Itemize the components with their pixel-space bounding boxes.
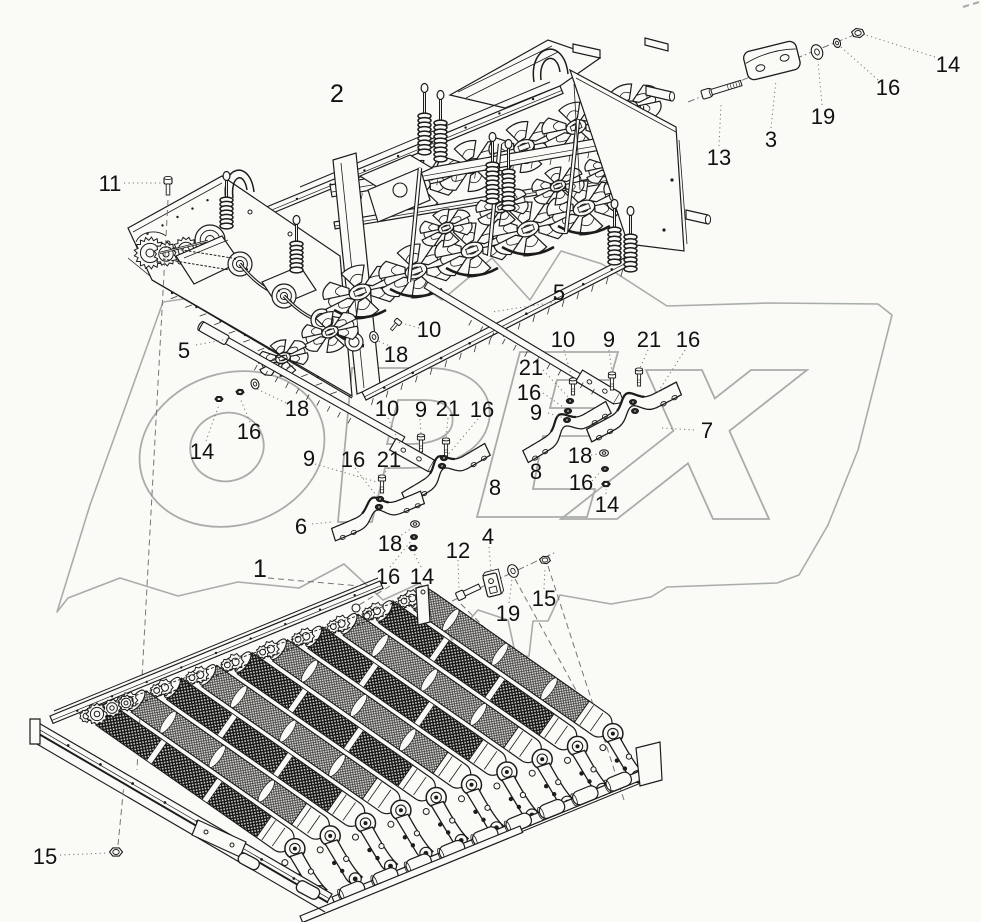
svg-text:16: 16 [237, 419, 261, 444]
svg-text:3: 3 [765, 127, 777, 152]
svg-text:9: 9 [415, 397, 427, 422]
svg-text:18: 18 [285, 396, 309, 421]
svg-text:5: 5 [553, 280, 565, 305]
svg-text:18: 18 [568, 443, 592, 468]
svg-text:15: 15 [532, 586, 556, 611]
svg-text:16: 16 [876, 75, 900, 100]
svg-text:9: 9 [603, 327, 615, 352]
svg-text:2: 2 [330, 80, 344, 108]
svg-text:12: 12 [446, 538, 470, 563]
svg-text:13: 13 [707, 145, 731, 170]
svg-text:10: 10 [551, 327, 575, 352]
svg-text:14: 14 [190, 439, 214, 464]
svg-text:8: 8 [530, 459, 542, 484]
svg-text:16: 16 [341, 447, 365, 472]
svg-text:16: 16 [569, 470, 593, 495]
svg-text:1: 1 [253, 555, 267, 583]
svg-text:9: 9 [530, 400, 542, 425]
svg-text:18: 18 [384, 342, 408, 367]
svg-text:8: 8 [489, 475, 501, 500]
svg-text:11: 11 [99, 171, 122, 196]
svg-text:4: 4 [482, 524, 494, 549]
svg-text:21: 21 [377, 447, 401, 472]
svg-text:19: 19 [811, 104, 835, 129]
svg-text:10: 10 [375, 396, 399, 421]
svg-text:9: 9 [303, 446, 315, 471]
svg-text:14: 14 [410, 564, 434, 589]
svg-text:21: 21 [519, 355, 543, 380]
svg-text:5: 5 [178, 338, 190, 363]
svg-text:6: 6 [295, 514, 307, 539]
svg-text:18: 18 [378, 531, 402, 556]
svg-text:21: 21 [436, 396, 460, 421]
svg-text:15: 15 [33, 844, 57, 869]
svg-text:19: 19 [496, 601, 520, 626]
svg-text:10: 10 [417, 317, 441, 342]
svg-text:21: 21 [637, 327, 661, 352]
svg-text:14: 14 [936, 52, 960, 77]
svg-text:16: 16 [676, 327, 700, 352]
svg-text:16: 16 [470, 397, 494, 422]
svg-text:7: 7 [701, 418, 713, 443]
svg-text:14: 14 [595, 492, 619, 517]
